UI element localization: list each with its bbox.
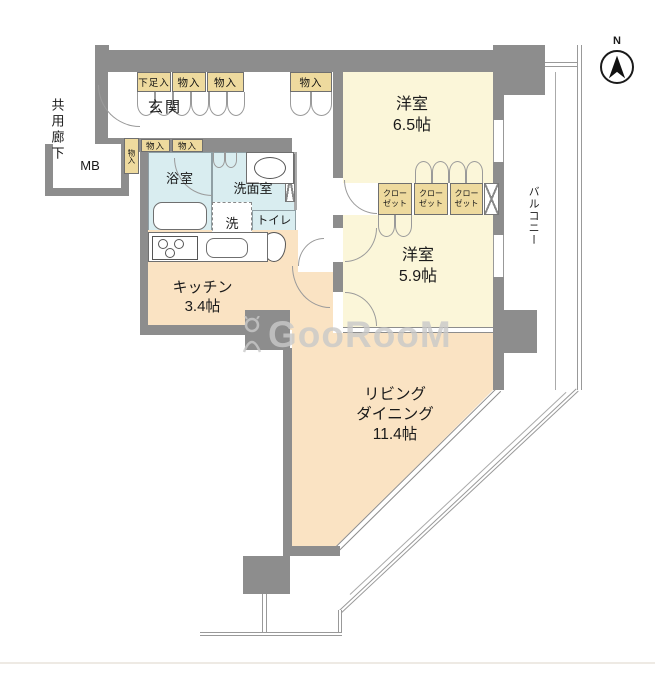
storage-label: 物入 — [146, 140, 165, 152]
wall-hall-a — [333, 60, 343, 178]
balcony-label: バルコニー — [524, 183, 542, 249]
pillar-top-right — [493, 45, 545, 95]
watermark-text: GooRooM — [268, 314, 452, 356]
storage-label: 物入 — [214, 75, 237, 90]
stove-burner — [174, 239, 184, 249]
living-line2: ダイニング — [356, 405, 434, 425]
storage-box-vertical: 物入 — [124, 138, 139, 174]
storage-box-small-2: 物入 — [172, 139, 203, 152]
bedroom-5-9-name: 洋室 — [402, 246, 434, 267]
balcony-text: バルコニー — [526, 186, 540, 246]
folding-door-arc — [225, 152, 237, 168]
shoe-storage-label: 下足入 — [138, 75, 170, 89]
storage-box-2: 物入 — [207, 72, 244, 92]
window-bedroom-5-9 — [493, 235, 504, 277]
wall-kitchen-bottom — [140, 325, 250, 335]
closet-box-1: クロー ゼット — [378, 183, 412, 215]
toilet-door-arc — [298, 238, 324, 266]
floor-plan: 下足入 物入 物入 物入 物入 物入 物入 クロー ゼット クロー ゼット クロ… — [0, 0, 655, 676]
closet-door-arc — [209, 92, 227, 116]
toilet-label: トイレ — [252, 214, 296, 228]
storage-label: 物入 — [178, 140, 197, 152]
closet-label-line1: クロー — [455, 189, 479, 199]
balcony-rail-bottom — [200, 632, 342, 636]
mb-text: MB — [80, 158, 100, 175]
bedroom-5-9-label: 洋室 5.9帖 — [358, 243, 478, 291]
closet-label-line1: クロー — [383, 189, 407, 199]
north-label: N — [606, 34, 628, 48]
bedroom-6-5-label: 洋室 6.5帖 — [352, 92, 472, 140]
storage-label: 物入 — [178, 75, 201, 90]
washroom-label: 洗面室 — [214, 180, 292, 198]
wall-living-left — [283, 348, 292, 553]
entrance-label: 玄関 — [125, 98, 205, 118]
balcony-floor-line-right — [555, 72, 556, 390]
shoe-storage-box: 下足入 — [137, 72, 171, 92]
folding-door-arc — [213, 152, 225, 168]
kitchen-sink — [206, 238, 248, 258]
closet-door-arc — [449, 161, 466, 183]
closet-door-arc — [311, 92, 332, 116]
laundry-label: 洗 — [212, 212, 252, 236]
toilet-text: トイレ — [257, 214, 292, 229]
storage-box-1: 物入 — [172, 72, 206, 92]
north-text: N — [613, 34, 621, 48]
living-dining-label: リビング ダイニング 11.4帖 — [330, 383, 460, 447]
storage-box-3: 物入 — [290, 72, 332, 92]
laundry-text: 洗 — [225, 216, 238, 233]
wall-living-bottom — [283, 546, 340, 556]
balcony-rail-right — [577, 45, 582, 390]
bedroom-6-5-name: 洋室 — [396, 95, 428, 116]
closet-door-arc — [415, 161, 432, 183]
entrance-text: 玄関 — [148, 98, 182, 118]
closet-door-arc — [466, 161, 483, 183]
closet-box-3: クロー ゼット — [450, 183, 483, 215]
wall-top — [95, 50, 495, 72]
watermark-mascot-icon — [240, 316, 264, 354]
closet-door-arc — [395, 215, 412, 237]
bottom-edge-line — [0, 662, 655, 664]
north-arrow-icon — [604, 54, 630, 80]
balcony-rail-tick — [545, 62, 577, 67]
bedroom-6-5-door-arc — [344, 180, 377, 214]
stove-burner — [158, 239, 168, 249]
living-line1: リビング — [364, 385, 426, 405]
bathtub — [153, 202, 207, 230]
closet-door-arc — [290, 92, 311, 116]
wall-hall-c — [333, 262, 343, 292]
closet-door-arc — [378, 215, 395, 237]
closet-door-arc — [432, 161, 449, 183]
storage-label: 物入 — [126, 149, 137, 164]
window-bedroom-6-5 — [493, 120, 504, 162]
washroom-text: 洗面室 — [233, 181, 272, 198]
wall-right-1 — [493, 95, 504, 120]
bathroom-label: 浴室 — [150, 170, 210, 188]
closet-label-line2: ゼット — [419, 199, 443, 209]
living-line3: 11.4帖 — [373, 425, 418, 445]
pillar-bottom-left — [243, 556, 290, 594]
bedroom-5-9-size: 5.9帖 — [399, 267, 437, 288]
stove-burner — [165, 248, 175, 258]
closet-label-line1: クロー — [419, 189, 443, 199]
pillar-mid-right — [498, 310, 537, 353]
kitchen-size: 3.4帖 — [185, 297, 221, 317]
closet-label-line2: ゼット — [455, 199, 479, 209]
bathroom-text: 浴室 — [166, 171, 194, 188]
closet-box-2: クロー ゼット — [414, 183, 448, 215]
common-corridor-text: 共用廊下 — [48, 98, 65, 162]
closet-door-arc — [227, 92, 245, 116]
wall-hall-b — [333, 215, 343, 228]
kitchen-name: キッチン — [172, 278, 232, 298]
watermark: GooRooM — [240, 312, 480, 358]
pipe-space-hatch — [484, 183, 499, 215]
wash-basin-bowl — [254, 157, 286, 179]
closet-label-line2: ゼット — [383, 199, 407, 209]
mb-label: MB — [60, 156, 120, 176]
storage-box-small-1: 物入 — [141, 139, 170, 152]
balcony-rail-connector — [262, 594, 267, 632]
compass — [600, 50, 634, 84]
bedroom-6-5-size: 6.5帖 — [393, 116, 431, 137]
storage-label: 物入 — [300, 75, 323, 90]
